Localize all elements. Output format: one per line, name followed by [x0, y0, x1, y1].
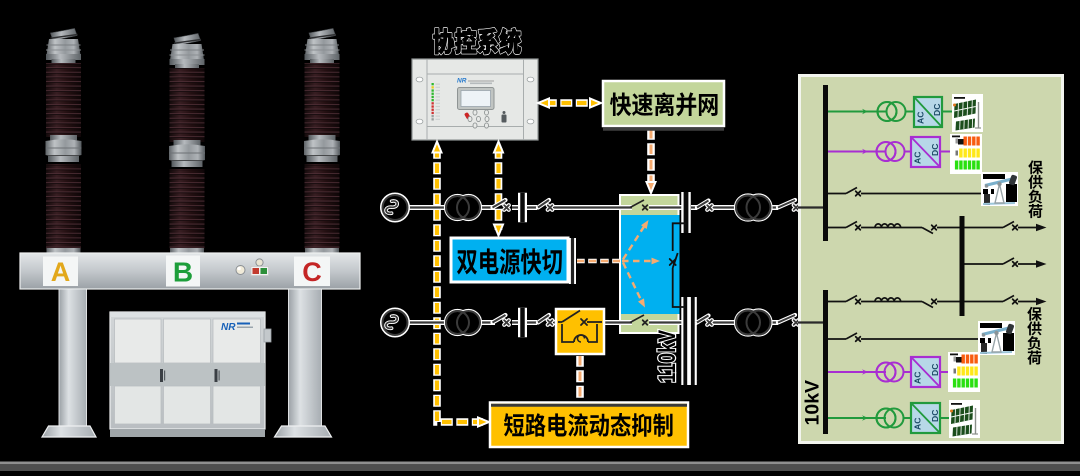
- svg-text:DC: DC: [930, 410, 940, 422]
- svg-text:B: B: [173, 257, 193, 288]
- svg-text:AC: AC: [913, 372, 923, 384]
- svg-text:DC: DC: [930, 144, 940, 156]
- svg-text:110kV: 110kV: [654, 329, 681, 383]
- svg-text:10kV: 10kV: [802, 380, 824, 426]
- svg-text:DC: DC: [932, 104, 942, 116]
- svg-text:C: C: [302, 257, 322, 287]
- svg-text:AC: AC: [913, 152, 923, 164]
- svg-text:NR: NR: [457, 78, 467, 85]
- svg-text:AC: AC: [913, 418, 923, 430]
- svg-text:DC: DC: [930, 364, 940, 376]
- svg-text:A: A: [51, 257, 71, 287]
- svg-text:AC: AC: [916, 112, 926, 124]
- svg-text:NR: NR: [221, 322, 236, 333]
